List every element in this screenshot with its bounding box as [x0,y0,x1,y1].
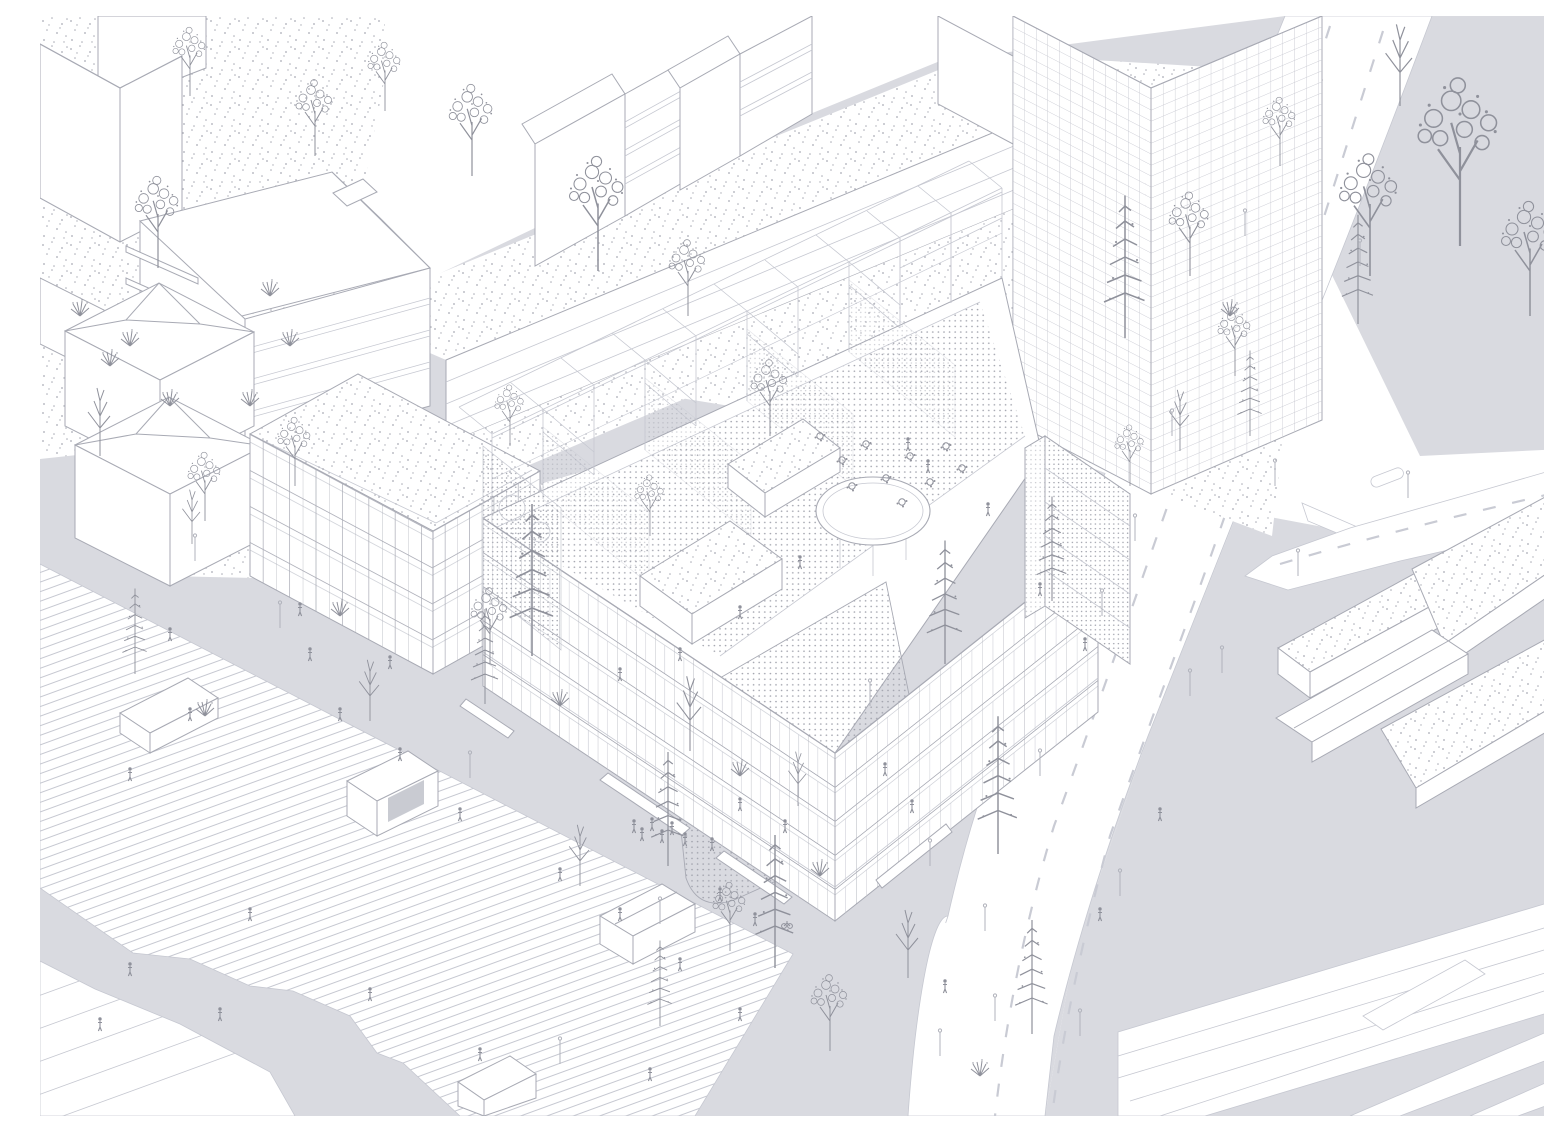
site-canvas: Axonometric urban site illustration [40,16,1544,1116]
axonometric-site-drawing: Axonometric urban site illustration Axon… [40,16,1544,1116]
